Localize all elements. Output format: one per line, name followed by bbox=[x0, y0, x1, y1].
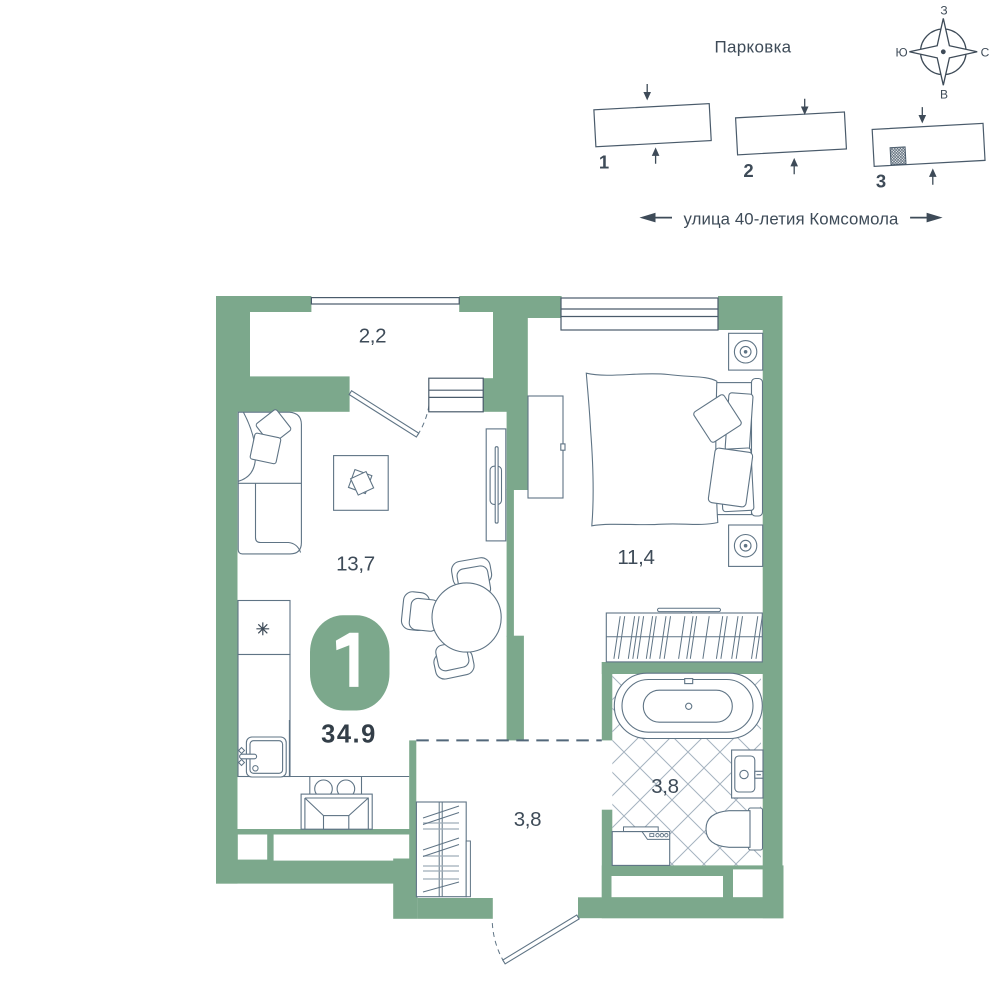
svg-text:Ю: Ю bbox=[895, 45, 907, 59]
svg-text:3: 3 bbox=[876, 171, 886, 192]
svg-text:улица 40-летия Комсомола: улица 40-летия Комсомола bbox=[683, 210, 899, 229]
svg-text:3,8: 3,8 bbox=[651, 775, 679, 798]
svg-text:В: В bbox=[940, 88, 948, 102]
svg-text:З: З bbox=[940, 4, 947, 18]
svg-text:2,2: 2,2 bbox=[359, 325, 387, 348]
svg-text:Парковка: Парковка bbox=[715, 38, 792, 57]
svg-text:34.9: 34.9 bbox=[321, 721, 377, 749]
svg-text:1: 1 bbox=[599, 152, 609, 173]
svg-text:3,8: 3,8 bbox=[514, 808, 542, 831]
svg-text:11,4: 11,4 bbox=[617, 546, 654, 569]
svg-text:13,7: 13,7 bbox=[336, 553, 375, 576]
svg-text:С: С bbox=[981, 45, 990, 59]
svg-text:2: 2 bbox=[743, 160, 753, 181]
